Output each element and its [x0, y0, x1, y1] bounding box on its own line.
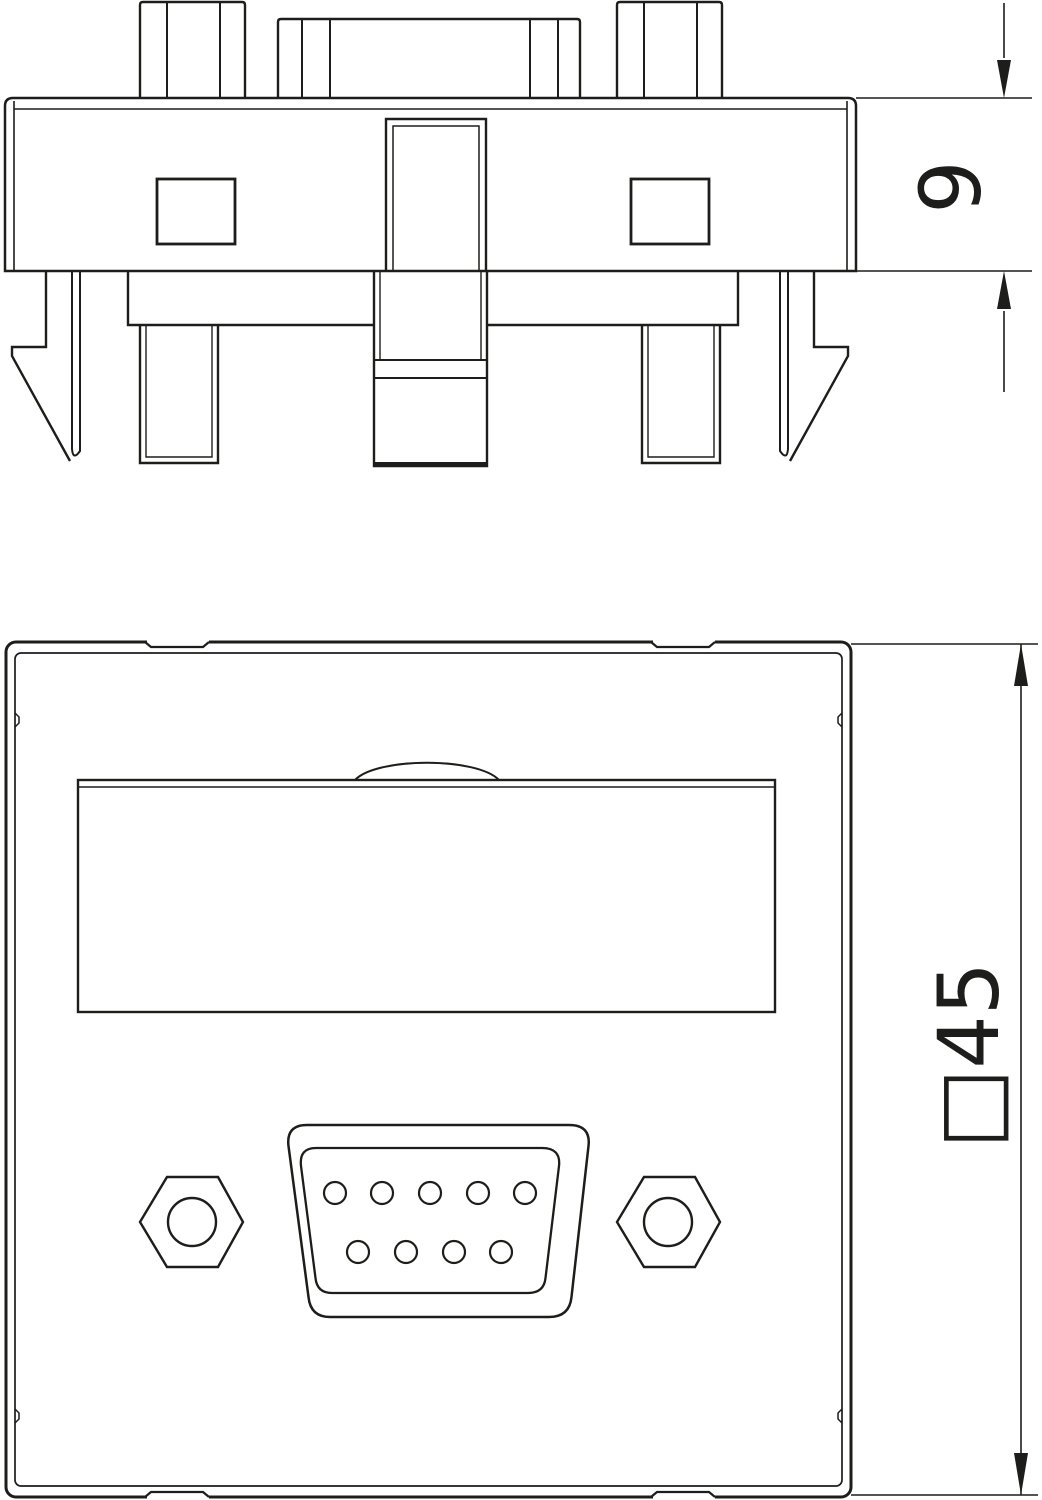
hex-nut-left: [140, 1177, 243, 1267]
hex-nut-left-bore: [168, 1198, 216, 1246]
snap-leg-left-inner: [146, 325, 212, 457]
side-body-outline: [5, 98, 856, 271]
mounting-post-left: [140, 2, 245, 98]
dimension-45: □45: [851, 644, 1038, 1495]
snap-leg-left: [140, 325, 218, 463]
snap-leg-right: [642, 325, 720, 463]
dsub-pin-hole: [443, 1241, 465, 1263]
center-post-ribs: [302, 19, 558, 98]
dimension-45-arrow-top: [1014, 644, 1028, 686]
label-field: [78, 780, 775, 1012]
hex-nut-right-bore: [644, 1198, 692, 1246]
dsub-pin-holes-bottom-row: [347, 1241, 512, 1263]
dimension-9: 9: [856, 3, 1032, 392]
hex-nut-left-body: [140, 1177, 243, 1267]
dsub-pin-hole: [324, 1182, 346, 1204]
dsub-pin-hole: [347, 1241, 369, 1263]
dsub-pin-hole: [514, 1182, 536, 1204]
dsub-pin-hole: [467, 1182, 489, 1204]
body-window-left: [157, 179, 235, 244]
notch-mask: [653, 638, 715, 645]
technical-drawing-page: 9: [0, 0, 1042, 1500]
dsub-pin-hole: [371, 1182, 393, 1204]
dsub-pin-hole: [490, 1241, 512, 1263]
under-shelf: [128, 271, 738, 325]
latch-hook-left-barb: [12, 271, 70, 461]
dimension-9-arrow-top: [997, 60, 1011, 98]
body-window-right: [631, 179, 709, 244]
snap-leg-right-inner: [648, 325, 714, 457]
dsub-inner-shell: [301, 1148, 559, 1293]
technical-drawing: 9: [0, 0, 1042, 1500]
dsub-pin-holes-top-row: [324, 1182, 536, 1204]
notch-mask: [147, 638, 209, 645]
latch-hook-right-barb: [790, 271, 848, 461]
dsub-outer-shell: [288, 1125, 589, 1317]
dsub-pin-hole: [395, 1241, 417, 1263]
side-view: 9: [5, 2, 1032, 467]
center-leg-groove: [374, 360, 487, 378]
notch-mask: [653, 1493, 715, 1500]
hex-nut-right-body: [617, 1177, 720, 1267]
hex-nut-right: [617, 1177, 720, 1267]
mounting-post-right: [617, 2, 722, 98]
center-post: [278, 19, 580, 98]
dimension-9-arrow-bottom: [997, 271, 1011, 309]
center-leg-outline: [374, 271, 487, 466]
mounting-post-right-ribs: [644, 2, 697, 98]
center-slot-outer: [386, 119, 486, 271]
latch-hook-left-stem: [72, 271, 80, 456]
dsub-pin-hole: [419, 1182, 441, 1204]
dsub-connector: [140, 1125, 720, 1317]
latch-hook-right-stem: [780, 271, 788, 456]
dimension-45-label: □45: [920, 962, 1018, 1148]
dimension-9-label: 9: [902, 160, 1000, 213]
thumb-notch-arc: [355, 763, 499, 780]
front-view: □45: [6, 638, 1038, 1500]
mounting-post-left-ribs: [167, 2, 220, 98]
front-plate-outline: [6, 642, 851, 1497]
center-leg-inner-lines: [380, 271, 481, 360]
center-slot-inner: [393, 126, 479, 271]
notch-mask: [147, 1493, 209, 1500]
center-leg-foot: [374, 462, 487, 467]
dimension-45-arrow-bottom: [1014, 1453, 1028, 1495]
front-plate-inner-line: [15, 653, 842, 1486]
